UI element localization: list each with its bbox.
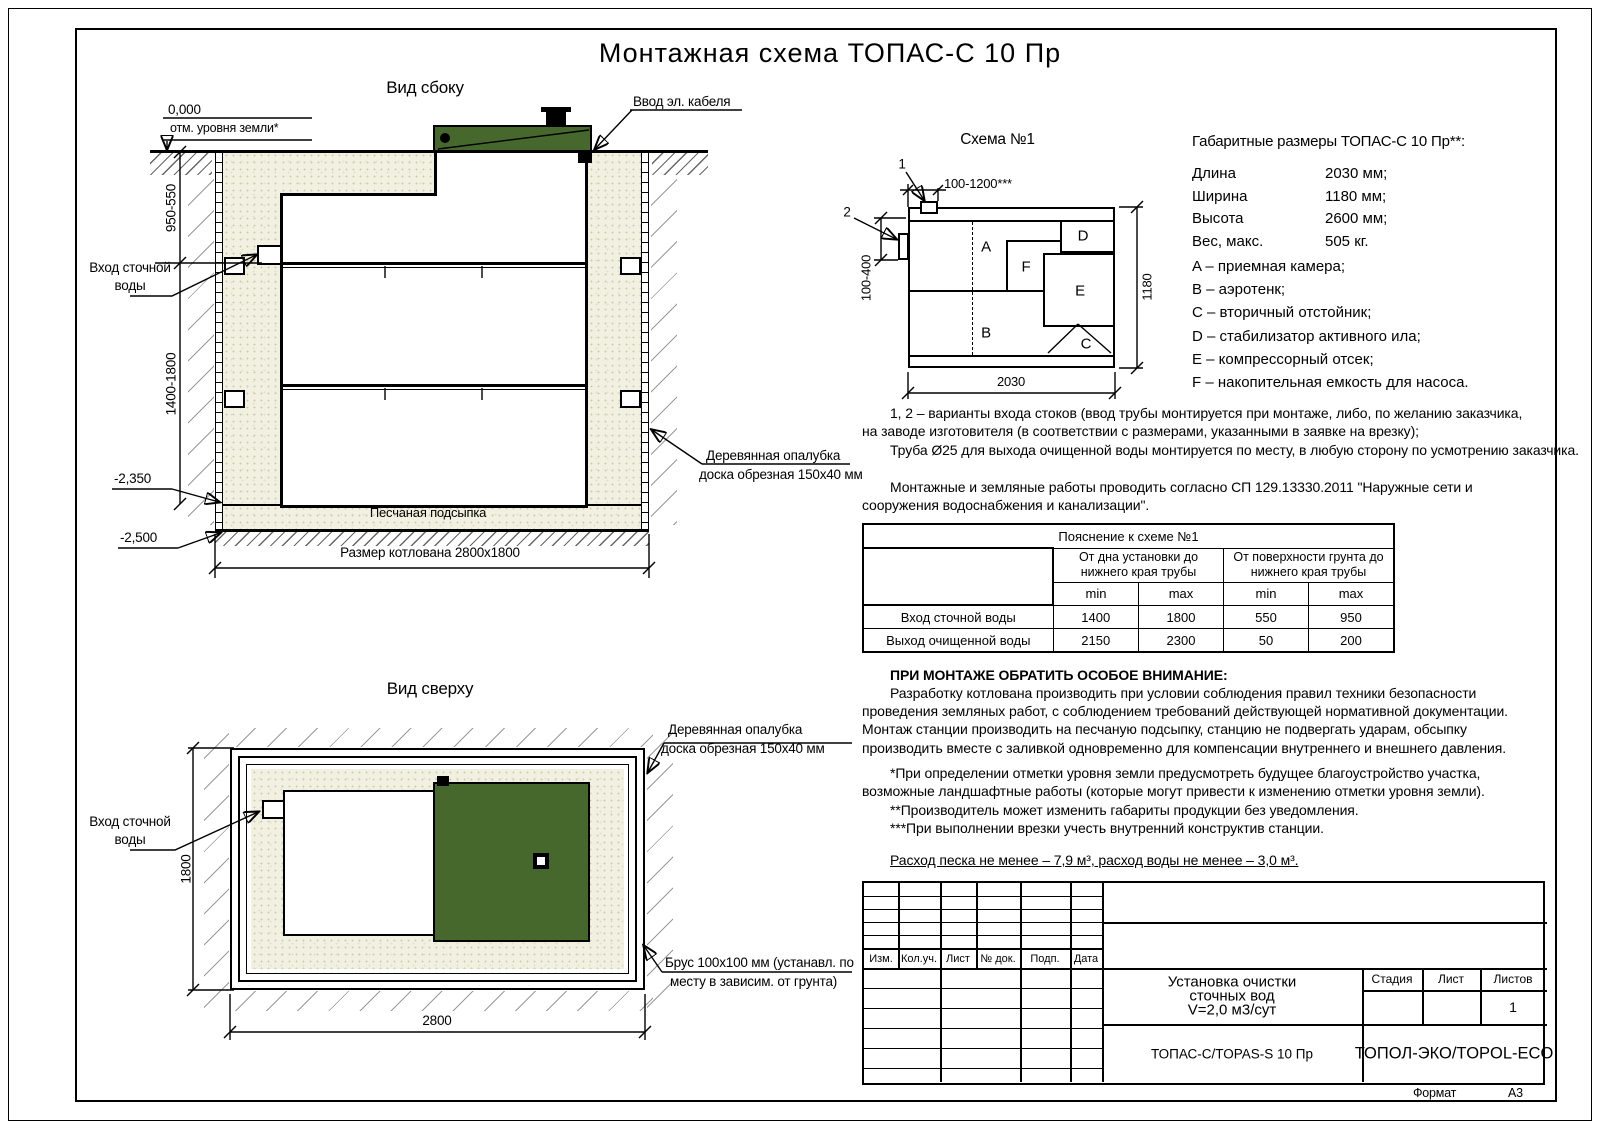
dim-value: 2600 мм; [1325, 210, 1387, 227]
sand-backfill-right [588, 152, 641, 505]
legend-item: B – аэротенк; [1192, 278, 1469, 301]
brus-label-2: месту в зависим. от грунта) [670, 974, 837, 989]
tb-col-data: Дата [1074, 953, 1098, 965]
table-min: min [1053, 582, 1139, 605]
sand-top-line-right [588, 504, 641, 506]
footnote-2: **Производитель может изменить габариты … [862, 801, 1552, 819]
legend-item: A – приемная камера; [1192, 255, 1469, 278]
table-title-row: Пояснение к схеме №1 [863, 524, 1394, 548]
row-value: 2150 [1053, 629, 1139, 653]
row-value: 950 [1309, 605, 1395, 629]
formwork-right [641, 152, 649, 532]
lid-vent-cap [541, 107, 571, 112]
tb-hline [864, 988, 1102, 989]
legend-item: E – компрессорный отсек; [1192, 348, 1469, 371]
schema-label-c: C [1081, 336, 1092, 353]
table-title: Пояснение к схеме №1 [863, 524, 1394, 548]
schema-dim-2030: 2030 [961, 374, 1061, 389]
stage-label: Стадия [1372, 972, 1413, 986]
tb-col-list: Лист [946, 953, 970, 965]
top-view-title: Вид сверху [350, 679, 510, 699]
schema-marker-2: 2 [843, 205, 850, 220]
level-2350: -2,350 [114, 471, 151, 486]
tb-vline-stage [1422, 968, 1424, 1024]
dim-value: 1180 мм; [1325, 188, 1386, 205]
schema-label-b: B [981, 325, 991, 342]
level-zero: 0,000 [168, 102, 201, 117]
format-value: А3 [1508, 1086, 1523, 1100]
brus-label-1: Брус 100х100 мм (устанавл. по [665, 955, 854, 970]
inlet-pipe-stub-side [257, 245, 282, 265]
tank-wall-right [585, 150, 588, 508]
attention-title: ПРИ МОНТАЖЕ ОБРАТИТЬ ОСОБОЕ ВНИМАНИЕ: [890, 666, 1228, 684]
lid-hinge-dot [440, 133, 450, 143]
table-group-row: От дна установки до нижнего края трубы О… [863, 548, 1394, 582]
tank-wall-left [280, 193, 283, 508]
attention-body: Разработку котлована производить при усл… [862, 684, 1538, 757]
tb-col-ndok: № док. [980, 953, 1015, 965]
table-min: min [1224, 582, 1309, 605]
tb-hline [864, 968, 1102, 970]
inlet-label-line1: Вход сточной [75, 260, 185, 275]
tb-hline [864, 1048, 1102, 1049]
schema-label-f: F [1022, 259, 1031, 276]
company-name: ТОПОЛ-ЭКО/TOPOL-ECO [1355, 1045, 1554, 1064]
footnote-3: ***При выполнении врезки учесть внутренн… [862, 819, 1552, 837]
inlet-label-top-line2: воды [75, 832, 185, 847]
top-hatch-bottom [225, 991, 653, 1011]
tb-vline-grid-right [1102, 883, 1104, 1082]
top-lid-hatch-square [533, 853, 549, 869]
tb-hline [864, 922, 1102, 923]
wall-clip [224, 390, 245, 408]
schema-dim-left: 100-400 [859, 255, 874, 301]
formwork-label-top-1: Деревянная опалубка [668, 722, 802, 737]
tank-step-vert [434, 150, 437, 196]
soil-hatch-left [150, 153, 212, 175]
dims-row: Длина2030 мм; [1192, 163, 1387, 186]
table-row: Вход сточной воды 1400 1800 550 950 [863, 605, 1394, 629]
dims-title: Габаритные размеры ТОПАС-С 10 Пр**: [1192, 133, 1465, 150]
schema-dashed-divider [972, 222, 973, 355]
tb-hline [864, 909, 1102, 910]
inlet-label-line2: воды [75, 278, 185, 293]
formwork-label-side-2: доска обрезная 150х40 мм [699, 467, 863, 482]
cable-entry-block [578, 152, 592, 163]
dims-row: Вес, макс.505 кг. [1192, 231, 1387, 254]
tb-col-podp: Подп. [1030, 953, 1059, 965]
table-group2: От поверхности грунта до нижнего края тр… [1224, 548, 1395, 582]
tb-col-izm: Изм. [869, 953, 893, 965]
soil-hatch-right-wall [651, 175, 677, 525]
dim-value: 505 кг. [1325, 233, 1369, 250]
title-block: Изм. Кол.уч. Лист № док. Подп. Дата Уста… [862, 881, 1545, 1085]
top-lid-vent [437, 776, 449, 786]
tb-vline [1020, 883, 1022, 1082]
tb-col-koluch: Кол.уч. [901, 953, 937, 965]
schema-label-e: E [1075, 283, 1085, 300]
inlet-label-top-line1: Вход сточной [75, 814, 185, 829]
lid-vent-chimney [546, 111, 566, 126]
cable-entry-label: Ввод эл. кабеля [633, 94, 730, 109]
dim-value: 2030 мм; [1325, 165, 1387, 182]
dims-list: Длина2030 мм; Ширина1180 мм; Высота2600 … [1192, 163, 1387, 253]
doc-name-line3: V=2,0 м3/сут [1188, 1002, 1276, 1019]
formwork-left [215, 152, 223, 532]
soil-hatch-left-wall [188, 175, 214, 525]
sheets-label: Листов [1494, 972, 1533, 986]
top-dim-1800: 1800 [179, 854, 194, 883]
table-corner-cell [863, 548, 1053, 605]
note-variants: 1, 2 – варианты входа стоков (ввод трубы… [862, 404, 1538, 440]
schema-stub-top [920, 201, 938, 214]
schema-title: Схема №1 [925, 131, 1070, 149]
page-title: Монтажная схема ТОПАС-С 10 Пр [590, 38, 1070, 69]
formwork-label-top-2: доска обрезная 150х40 мм [661, 741, 825, 756]
schema-stub-left [898, 233, 909, 260]
schema-marker-1: 1 [898, 157, 905, 172]
dims-row: Ширина1180 мм; [1192, 186, 1387, 209]
sand-backfill-left [223, 152, 280, 505]
top-dim-2800: 2800 [387, 1013, 487, 1028]
product-name: ТОПАС-С/TOPAS-S 10 Пр [1151, 1047, 1313, 1062]
row-label: Вход сточной воды [863, 605, 1053, 629]
sand-top-line-left [223, 504, 280, 506]
legend-item: C – вторичный отстойник; [1192, 301, 1469, 324]
tb-hline [864, 1028, 1102, 1029]
legend-item: F – накопительная емкость для насоса. [1192, 371, 1469, 394]
sand-bedding-label: Песчаная подсыпка [328, 505, 528, 520]
formwork-label-side-1: Деревянная опалубка [706, 448, 840, 463]
top-hatch-left [204, 728, 229, 1011]
footnote-1: *При определении отметки уровня земли пр… [862, 764, 1552, 800]
sheets-value: 1 [1509, 999, 1517, 1015]
soil-hatch-bottom [215, 532, 649, 546]
level-zero-note: отм. уровня земли* [170, 121, 278, 135]
dim-label: Ширина [1192, 186, 1325, 209]
schema-label-a: A [981, 239, 991, 256]
row-value: 550 [1224, 605, 1309, 629]
tb-hline-stage [1362, 990, 1547, 992]
tank-deck1 [283, 262, 585, 265]
row-value: 1800 [1139, 605, 1224, 629]
compartment-legend: A – приемная камера; B – аэротенк; C – в… [1192, 255, 1469, 394]
tb-hline [864, 896, 1102, 897]
top-tank-body [283, 790, 438, 936]
tb-hline [864, 948, 1102, 950]
level-2500: -2,500 [120, 530, 157, 545]
table-max: max [1139, 582, 1224, 605]
pit-bottom-line [215, 529, 649, 532]
schema-bottom-line [910, 355, 1113, 357]
wall-clip [620, 257, 641, 275]
wall-clip [620, 390, 641, 408]
table-max: max [1309, 582, 1395, 605]
tb-vline [1070, 883, 1072, 1082]
ground-line [150, 150, 708, 153]
dim-label: Вес, макс. [1192, 231, 1325, 254]
soil-hatch-right [652, 153, 708, 175]
tb-hline-right [1102, 922, 1547, 924]
table-group1: От дна установки до нижнего края трубы [1053, 548, 1224, 582]
tank-deck2-thin [283, 389, 585, 390]
pit-size-label: Размер котлована 2800х1800 [280, 545, 580, 560]
table-row: Выход очищенной воды 2150 2300 50 200 [863, 629, 1394, 653]
dim-label: Высота [1192, 208, 1325, 231]
row-value: 2300 [1139, 629, 1224, 653]
tank-deck1-thin [283, 267, 585, 268]
row-value: 50 [1224, 629, 1309, 653]
sheet-label: Лист [1438, 972, 1464, 986]
schema-label-d: D [1078, 228, 1089, 245]
tank-lid [433, 125, 592, 152]
row-value: 200 [1309, 629, 1395, 653]
top-tank-lid-green [433, 782, 590, 942]
side-view-title: Вид сбоку [350, 78, 500, 98]
dim-label: Длина [1192, 163, 1325, 186]
tank-step-top [280, 193, 437, 196]
tb-vline [940, 883, 942, 1082]
tb-hline-right [1102, 1024, 1547, 1026]
dim-1400-1800: 1400-1800 [164, 353, 179, 416]
tb-hline [864, 1008, 1102, 1009]
dim-950-550: 950-550 [164, 184, 179, 232]
legend-item: D – стабилизатор активного ила; [1192, 325, 1469, 348]
tank-deck2 [283, 384, 585, 387]
sand-backfill-step [280, 152, 434, 193]
explanation-table: Пояснение к схеме №1 От дна установки до… [862, 523, 1395, 653]
schema-dim-1180: 1180 [1140, 273, 1155, 300]
inlet-pipe-stub-top [262, 800, 285, 819]
consumption-note: Расход песка не менее – 7,9 м³, расход в… [890, 851, 1298, 869]
tb-vline-right [1362, 968, 1364, 1082]
tb-hline [864, 935, 1102, 936]
note-sp: Монтажные и земляные работы проводить со… [862, 478, 1538, 514]
tb-vline-stage [1480, 968, 1482, 1024]
schema-dim-top: 100-1200*** [944, 176, 1012, 191]
dims-row: Высота2600 мм; [1192, 208, 1387, 231]
top-hatch-top [225, 728, 653, 747]
row-label: Выход очищенной воды [863, 629, 1053, 653]
format-label: Формат [1413, 1086, 1456, 1100]
note-pipe: Труба Ø25 для выхода очищенной воды монт… [862, 441, 1562, 459]
drawing-sheet: Монтажная схема ТОПАС-С 10 Пр Вид сбоку … [0, 0, 1600, 1131]
row-value: 1400 [1053, 605, 1139, 629]
tb-hline [864, 1068, 1102, 1069]
wall-clip [224, 257, 245, 275]
